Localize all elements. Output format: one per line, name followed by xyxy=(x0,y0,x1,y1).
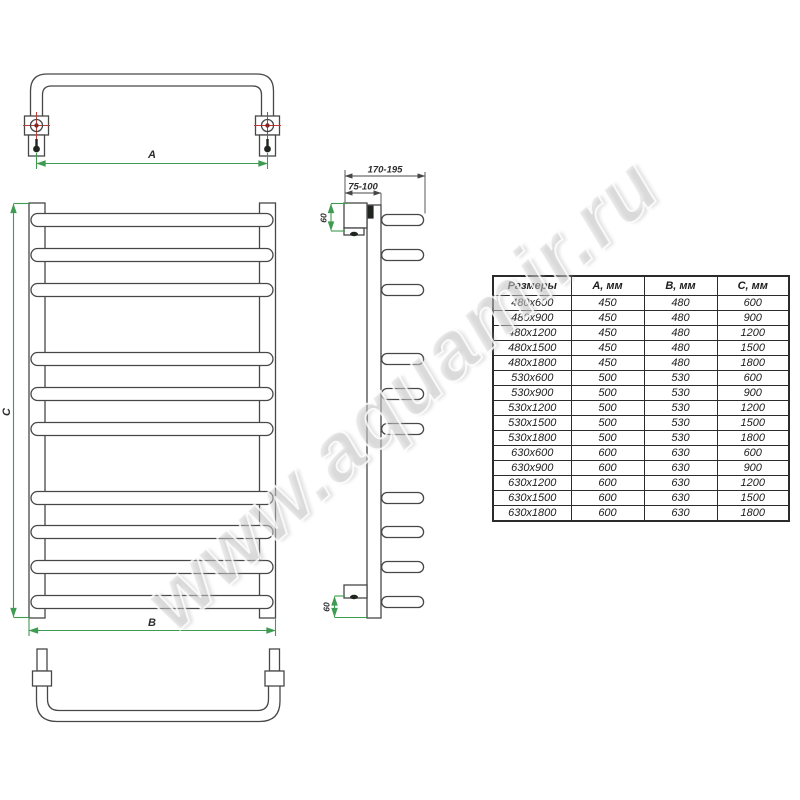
table-cell: 480 xyxy=(644,356,717,371)
dim-label-b: B xyxy=(148,617,156,629)
table-cell: 900 xyxy=(717,386,789,401)
table-cell: 480 xyxy=(644,311,717,326)
table-cell: 600 xyxy=(571,461,644,476)
table-cell: 530x600 xyxy=(493,371,571,386)
wall-bracket-right xyxy=(254,112,281,156)
table-row: 530x15005005301500 xyxy=(493,416,789,431)
table-row: 630x15006006301500 xyxy=(493,491,789,506)
table-row: 630x900600630900 xyxy=(493,461,789,476)
table-cell: 1200 xyxy=(717,476,789,491)
dimension-offset-top: 60 xyxy=(319,204,348,232)
table-row: 530x900500530900 xyxy=(493,386,789,401)
col-header-c: С, мм xyxy=(717,276,789,296)
table-cell: 500 xyxy=(571,386,644,401)
table-cell: 600 xyxy=(717,371,789,386)
top-view-tube-inner xyxy=(43,86,262,116)
table-cell: 480 xyxy=(644,341,717,356)
table-cell: 1500 xyxy=(717,491,789,506)
side-bracket-top xyxy=(344,203,367,236)
table-cell: 630 xyxy=(644,461,717,476)
bottom-view-drawing xyxy=(33,649,285,722)
side-view-drawing: 170-195 75-100 60 60 xyxy=(319,165,426,619)
col-header-a: А, мм xyxy=(571,276,644,296)
table-row: 480x15004504801500 xyxy=(493,341,789,356)
table-row: 630x12006006301200 xyxy=(493,476,789,491)
table-cell: 500 xyxy=(571,416,644,431)
table-cell: 630x900 xyxy=(493,461,571,476)
table-cell: 630x1800 xyxy=(493,506,571,522)
table-row: 480x12004504801200 xyxy=(493,326,789,341)
table-row: 530x600500530600 xyxy=(493,371,789,386)
table-cell: 900 xyxy=(717,311,789,326)
table-cell: 630 xyxy=(644,506,717,522)
table-cell: 450 xyxy=(571,341,644,356)
table-row: 530x18005005301800 xyxy=(493,431,789,446)
front-rungs xyxy=(31,214,273,609)
table-cell: 1800 xyxy=(717,506,789,522)
table-cell: 630x1200 xyxy=(493,476,571,491)
table-cell: 480x900 xyxy=(493,311,571,326)
table-cell: 1200 xyxy=(717,326,789,341)
table-cell: 500 xyxy=(571,431,644,446)
table-cell: 530x1200 xyxy=(493,401,571,416)
dimension-b: B xyxy=(29,617,276,636)
dim-label-depth-outer: 170-195 xyxy=(368,165,404,176)
table-cell: 630 xyxy=(644,446,717,461)
top-view-tube-outer xyxy=(31,74,274,116)
dim-label-offset-bottom: 60 xyxy=(322,602,332,612)
table-cell: 530x1500 xyxy=(493,416,571,431)
table-cell: 630 xyxy=(644,491,717,506)
size-table-body: 480x600450480600480x900450480900480x1200… xyxy=(493,296,789,522)
table-cell: 530 xyxy=(644,401,717,416)
table-cell: 1800 xyxy=(717,356,789,371)
wall-bracket-left xyxy=(23,112,50,156)
bottom-fitting-right xyxy=(265,649,284,686)
dim-label-c: C xyxy=(1,407,13,416)
dim-label-depth-inner: 75-100 xyxy=(348,182,378,193)
bottom-tube-outer xyxy=(37,686,281,722)
col-header-b: В, мм xyxy=(644,276,717,296)
size-table-header-row: Размеры А, мм В, мм С, мм xyxy=(493,276,789,296)
table-row: 630x600600630600 xyxy=(493,446,789,461)
dimension-offset-bottom: 60 xyxy=(322,596,368,618)
front-post-right xyxy=(260,203,276,618)
bottom-fitting-left xyxy=(33,649,52,686)
table-row: 530x12005005301200 xyxy=(493,401,789,416)
bottom-tube-inner xyxy=(48,686,269,711)
table-cell: 530x1800 xyxy=(493,431,571,446)
table-cell: 600 xyxy=(571,446,644,461)
table-cell: 480x1500 xyxy=(493,341,571,356)
side-pipe xyxy=(367,205,381,618)
side-rungs xyxy=(382,215,424,608)
table-row: 630x18006006301800 xyxy=(493,506,789,522)
table-cell: 1200 xyxy=(717,401,789,416)
table-cell: 480x1200 xyxy=(493,326,571,341)
table-cell: 1500 xyxy=(717,341,789,356)
side-bracket-bottom xyxy=(344,585,367,599)
table-cell: 480x1800 xyxy=(493,356,571,371)
table-cell: 1500 xyxy=(717,416,789,431)
table-cell: 530 xyxy=(644,431,717,446)
table-cell: 600 xyxy=(571,491,644,506)
table-cell: 500 xyxy=(571,401,644,416)
table-cell: 450 xyxy=(571,326,644,341)
table-cell: 530 xyxy=(644,371,717,386)
table-row: 480x600450480600 xyxy=(493,296,789,311)
table-cell: 480x600 xyxy=(493,296,571,311)
table-cell: 450 xyxy=(571,311,644,326)
dimension-a: A xyxy=(37,149,268,169)
table-row: 480x900450480900 xyxy=(493,311,789,326)
drawing-sheet: A C xyxy=(0,0,800,800)
table-cell: 500 xyxy=(571,371,644,386)
table-cell: 530 xyxy=(644,416,717,431)
size-table: Размеры А, мм В, мм С, мм 480x6004504806… xyxy=(492,275,790,522)
top-view-drawing: A xyxy=(23,74,281,169)
table-cell: 480 xyxy=(644,296,717,311)
dim-label-a: A xyxy=(147,149,156,161)
table-row: 480x18004504801800 xyxy=(493,356,789,371)
table-cell: 630 xyxy=(644,476,717,491)
table-cell: 600 xyxy=(717,296,789,311)
table-cell: 900 xyxy=(717,461,789,476)
dim-label-offset-top: 60 xyxy=(319,213,329,223)
front-view-drawing: C B xyxy=(1,203,276,636)
col-header-sizes: Размеры xyxy=(493,276,571,296)
table-cell: 1800 xyxy=(717,431,789,446)
dimension-depth-inner: 75-100 xyxy=(345,182,381,206)
table-cell: 600 xyxy=(571,506,644,522)
side-pipe-cap xyxy=(368,206,374,219)
table-cell: 450 xyxy=(571,356,644,371)
table-cell: 600 xyxy=(571,476,644,491)
table-cell: 450 xyxy=(571,296,644,311)
table-cell: 630x600 xyxy=(493,446,571,461)
table-cell: 600 xyxy=(717,446,789,461)
dimension-c: C xyxy=(1,204,29,618)
table-cell: 530x900 xyxy=(493,386,571,401)
front-post-left xyxy=(29,203,45,618)
table-cell: 480 xyxy=(644,326,717,341)
table-cell: 630x1500 xyxy=(493,491,571,506)
table-cell: 530 xyxy=(644,386,717,401)
